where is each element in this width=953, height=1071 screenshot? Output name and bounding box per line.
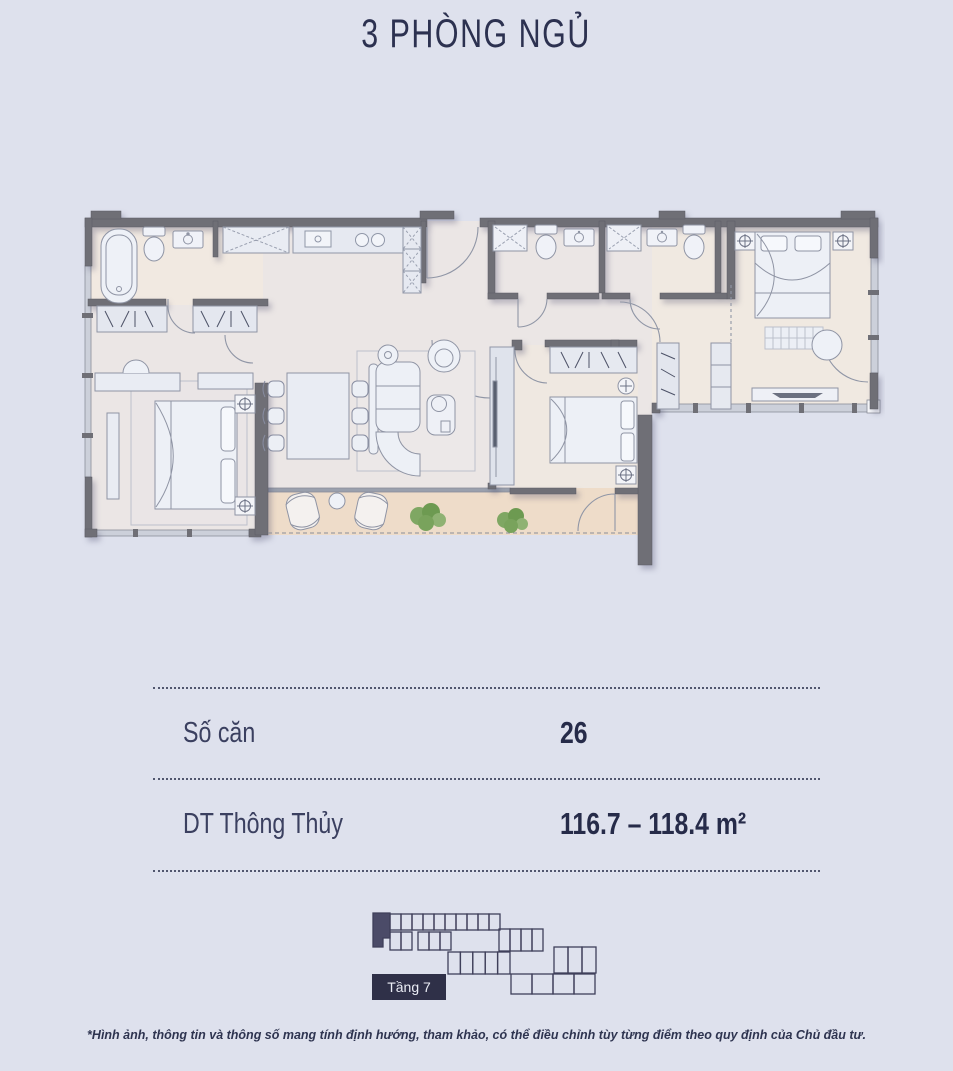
- pillow: [621, 433, 634, 461]
- sink-icon: [564, 229, 594, 246]
- page-title-text: 3 PHÒNG NGỦ: [362, 12, 592, 57]
- highlighted-unit: [373, 913, 390, 947]
- sink-icon: [647, 229, 677, 246]
- console-icon: [107, 413, 119, 499]
- tv-icon: [493, 381, 497, 447]
- tall-cabinet-icon: [403, 227, 421, 293]
- toilet-icon: [143, 227, 165, 261]
- sliding-door-band: [268, 488, 510, 492]
- pillow: [621, 401, 634, 429]
- disclaimer-text: *Hình ảnh, thông tin và thông số mang tí…: [0, 1028, 953, 1042]
- pillow: [221, 459, 235, 503]
- column-marker-icon: [235, 395, 255, 413]
- spec-label: Số căn: [153, 717, 560, 750]
- desk-icon: [95, 373, 180, 391]
- cooktop-icon: [356, 234, 369, 247]
- key-plan-svg: Tầng 7: [368, 902, 603, 1002]
- pillow: [795, 236, 821, 251]
- bedroom2-top-wall: [545, 340, 637, 347]
- sofa-icon: [376, 362, 420, 432]
- dotted-separator: [153, 870, 820, 872]
- floor-badge-label: Tầng 7: [387, 979, 431, 995]
- master-partition-wall: [255, 383, 268, 535]
- tv-icon: [772, 393, 823, 398]
- column-marker-icon: [735, 232, 755, 250]
- balcony-floor: [268, 488, 638, 535]
- page-title: 3 PHÒNG NGỦ: [0, 12, 953, 57]
- pouf-icon: [812, 330, 842, 360]
- column-marker-icon: [616, 466, 636, 484]
- floor-plan-svg: [75, 205, 885, 575]
- balcony-table-icon: [329, 493, 345, 509]
- toilet-icon: [683, 225, 705, 259]
- shower-icon: [607, 225, 641, 251]
- side-table-icon: [378, 345, 398, 365]
- floor-plan: [75, 205, 885, 575]
- page: 3 PHÒNG NGỦ: [0, 0, 953, 1071]
- kitchen-sink-icon: [305, 231, 331, 247]
- sink-icon: [173, 231, 203, 248]
- dining-table: [287, 373, 349, 459]
- spec-value: 116.7 – 118.4 m²: [560, 806, 820, 842]
- column-marker-icon: [833, 232, 853, 250]
- spec-row-unit-count: Số căn 26: [153, 688, 820, 778]
- bedroom2: [550, 347, 637, 484]
- column-marker-icon: [235, 497, 255, 515]
- spec-value: 26: [560, 715, 820, 751]
- sideboard-icon: [198, 373, 253, 389]
- key-plan: Tầng 7: [368, 902, 603, 1002]
- toilet-icon: [535, 225, 557, 259]
- wardrobe-icon: [657, 343, 679, 409]
- spec-label: DT Thông Thủy: [153, 808, 560, 841]
- spec-row-area: DT Thông Thủy 116.7 – 118.4 m²: [153, 779, 820, 869]
- cabinet-icon: [711, 343, 731, 409]
- shower-icon: [493, 225, 527, 251]
- structural-column: [638, 415, 652, 565]
- pillow: [221, 407, 235, 451]
- wardrobe-icon: [193, 306, 257, 332]
- wardrobe-icon: [550, 347, 637, 373]
- wardrobe-icon: [97, 306, 167, 332]
